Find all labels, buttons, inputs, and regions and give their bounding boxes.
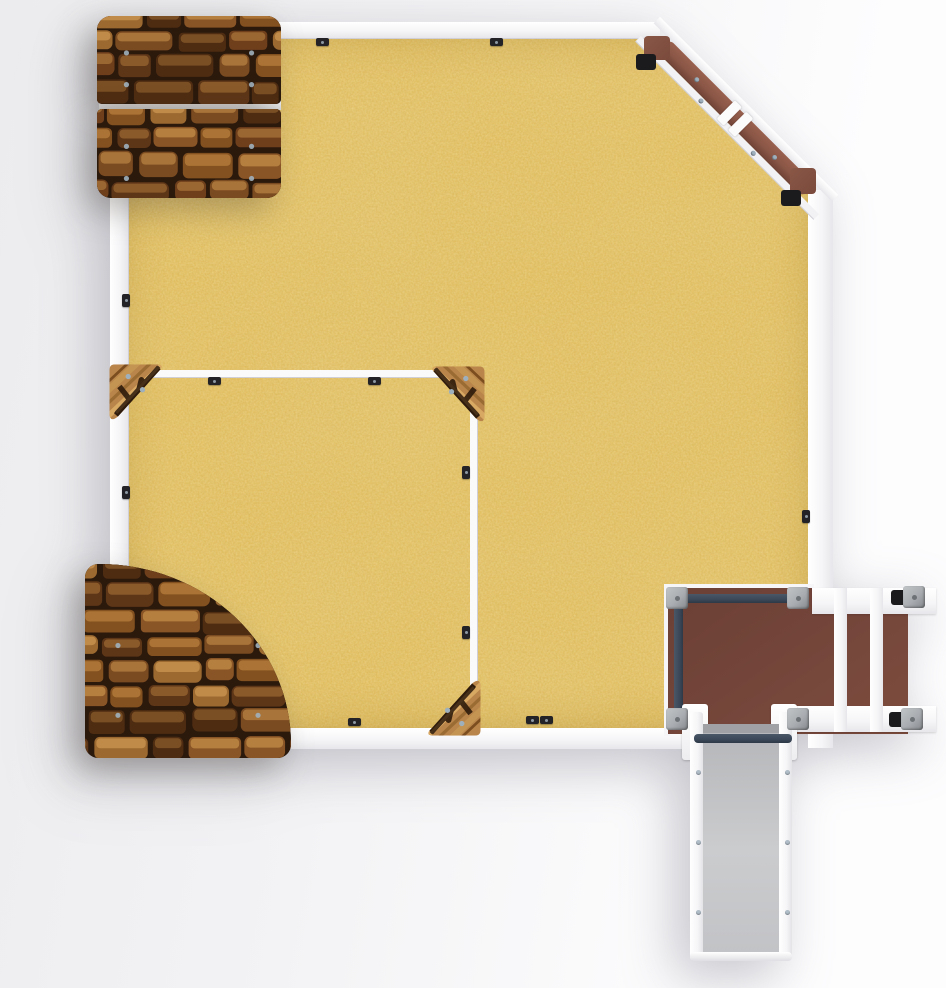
deck-guard-rail-left: [674, 606, 683, 716]
frame-clip: [316, 38, 329, 46]
deck-post: [787, 708, 809, 730]
frame-clip: [208, 377, 221, 385]
wood-corner-seat: [424, 362, 490, 428]
frame-clip: [462, 466, 470, 479]
deck-post: [666, 587, 688, 609]
slide-bottom-cap: [690, 952, 792, 961]
wood-corner-seat: [420, 674, 486, 740]
slide-side-rail: [690, 712, 703, 960]
beam-end-cap: [636, 54, 656, 70]
deck-post: [666, 708, 688, 730]
screw-dot: [785, 910, 790, 915]
frame-clip: [526, 716, 539, 724]
inner-divider-rail-horizontal: [122, 370, 474, 378]
frame-clip: [122, 294, 130, 307]
brick-climb-panel-lower: [97, 109, 281, 198]
brick-climb-panel-upper: [97, 16, 281, 104]
wood-corner-seat: [104, 360, 170, 426]
brick-quarter-panel: [85, 564, 291, 758]
screw-dot: [785, 770, 790, 775]
slide-safety-bar: [694, 734, 792, 743]
frame-clip: [368, 377, 381, 385]
step-rung: [834, 588, 847, 732]
deck-post: [901, 708, 923, 730]
deck-guard-rail-top: [684, 594, 796, 603]
screw-dot: [696, 770, 701, 775]
frame-clip: [348, 718, 361, 726]
screw-dot: [785, 840, 790, 845]
slide-side-rail: [779, 712, 792, 960]
screw-dot: [696, 840, 701, 845]
step-rung: [870, 588, 883, 732]
frame-clip: [540, 716, 553, 724]
frame-clip: [122, 486, 130, 499]
sandbox-unit: [0, 0, 946, 988]
slide-bed: [703, 724, 779, 952]
deck-post: [787, 587, 809, 609]
frame-clip: [802, 510, 810, 523]
playground-top-view: [0, 0, 946, 988]
slide-top-lip: [703, 724, 779, 733]
frame-clip: [462, 626, 470, 639]
frame-clip: [490, 38, 503, 46]
beam-end-cap: [781, 190, 801, 206]
screw-dot: [696, 910, 701, 915]
deck-post: [903, 586, 925, 608]
